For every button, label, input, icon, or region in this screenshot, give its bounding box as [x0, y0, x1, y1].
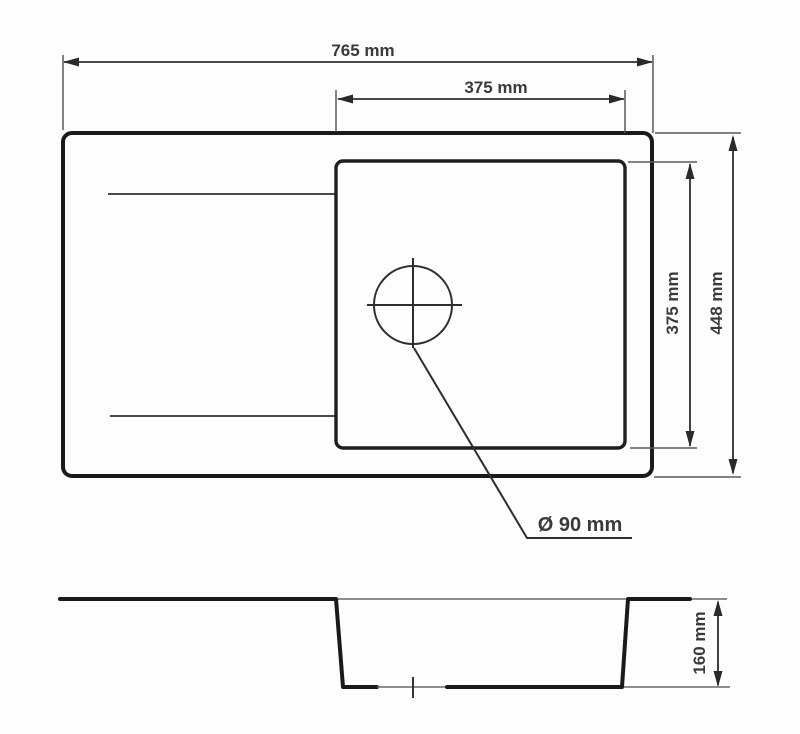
drain-diameter-label: Ø 90 mm: [538, 514, 622, 536]
dim-160-arrow-bottom: [714, 671, 723, 687]
dim-375w-arrow-left: [337, 95, 353, 104]
dim-765-arrow-right: [637, 58, 653, 67]
dim-448-arrow-bottom: [729, 459, 738, 475]
sink-technical-drawing: Ø 90 mm 765 mm 375 mm 375 mm: [0, 0, 800, 734]
dim-160-arrow-top: [714, 600, 723, 616]
overall-width-label: 765 mm: [331, 41, 394, 60]
dim-bowl-height: 160 mm: [690, 600, 723, 687]
dim-448-arrow-top: [729, 135, 738, 151]
dim-basin-width: 375 mm: [336, 78, 625, 133]
dim-overall-width: 765 mm: [63, 41, 653, 133]
dim-basin-depth: 375 mm: [628, 162, 697, 448]
dim-765-arrow-left: [63, 58, 79, 67]
side-profile-right: [447, 599, 690, 687]
drawing-svg: Ø 90 mm 765 mm 375 mm 375 mm: [0, 0, 800, 734]
basin-width-label: 375 mm: [464, 78, 527, 97]
bowl-height-label: 160 mm: [690, 611, 709, 674]
dim-375d-arrow-top: [686, 163, 695, 179]
dim-375d-arrow-bottom: [686, 431, 695, 447]
side-view: [60, 599, 730, 698]
drain-leader-line: [414, 348, 632, 538]
sink-outer-rim: [63, 133, 652, 476]
basin-depth-label: 375 mm: [663, 271, 682, 334]
side-profile-left: [60, 599, 377, 687]
dim-375w-arrow-right: [609, 95, 625, 104]
overall-depth-label: 448 mm: [707, 271, 726, 334]
top-view: Ø 90 mm: [63, 133, 652, 538]
